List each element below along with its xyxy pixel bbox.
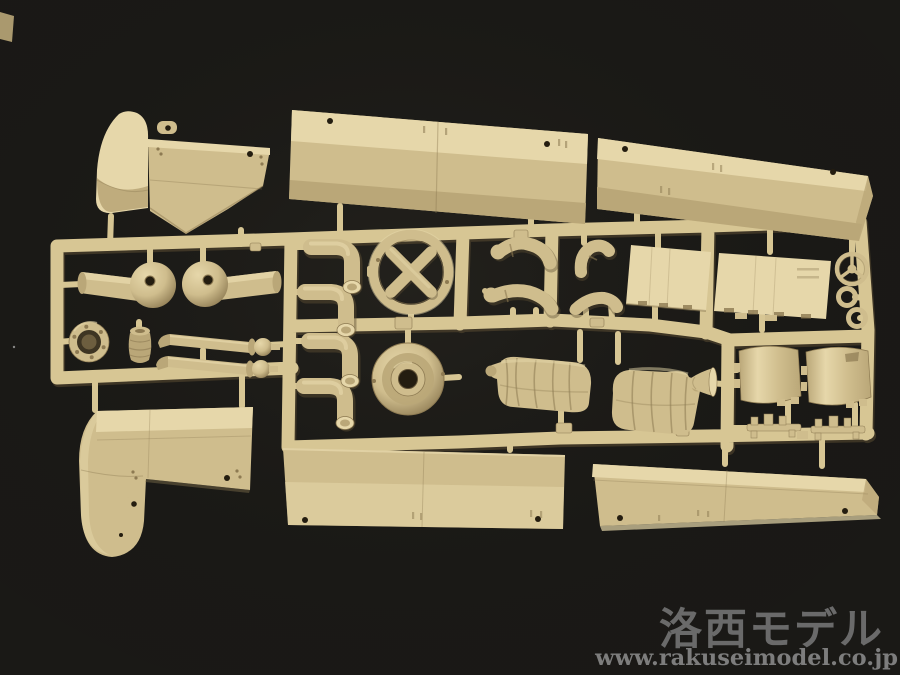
door-panel-1: [626, 245, 711, 311]
seat-2: [801, 347, 871, 408]
wheel-hub-dish: [372, 343, 445, 415]
flanged-ring: [69, 322, 109, 362]
ribbed-cap: [129, 327, 152, 364]
seat-1: [734, 346, 801, 406]
stray-runner-corner: [0, 12, 14, 42]
side-panel-bottom-middle: [283, 448, 565, 529]
watermark-url: www.rakuseimodel.co.jp: [594, 645, 898, 671]
photo-stage: 洛西モデル www.rakuseimodel.co.jp: [0, 0, 900, 675]
dust-speck: [13, 346, 15, 348]
sprue-photo: 洛西モデル www.rakuseimodel.co.jp: [0, 0, 900, 675]
door-panel-2: [714, 253, 831, 321]
figure-torso-2: [612, 369, 703, 435]
small-block: [797, 431, 808, 439]
